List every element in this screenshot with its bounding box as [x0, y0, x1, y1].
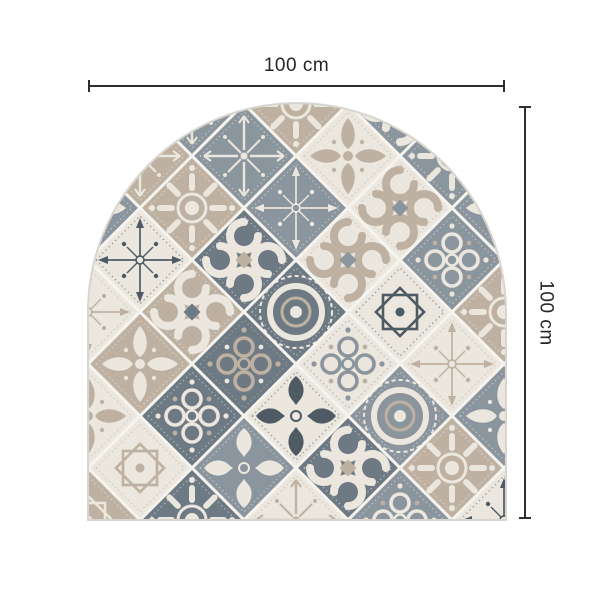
width-dimension-label: 100 cm: [88, 55, 505, 77]
height-dimension-tick-bottom: [519, 517, 531, 519]
height-dimension-line: [524, 106, 526, 519]
doormat-image: [0, 0, 600, 600]
height-dimension-label: 100 cm: [535, 280, 557, 345]
product-dimension-figure: 100 cm 100 cm: [0, 0, 600, 600]
height-dimension-label-wrap: 100 cm: [531, 106, 561, 519]
width-dimension-tick-left: [88, 80, 90, 92]
height-dimension-tick-top: [519, 106, 531, 108]
tile-patchwork: [36, 52, 556, 572]
width-dimension-tick-right: [503, 80, 505, 92]
width-dimension-line: [88, 85, 505, 87]
